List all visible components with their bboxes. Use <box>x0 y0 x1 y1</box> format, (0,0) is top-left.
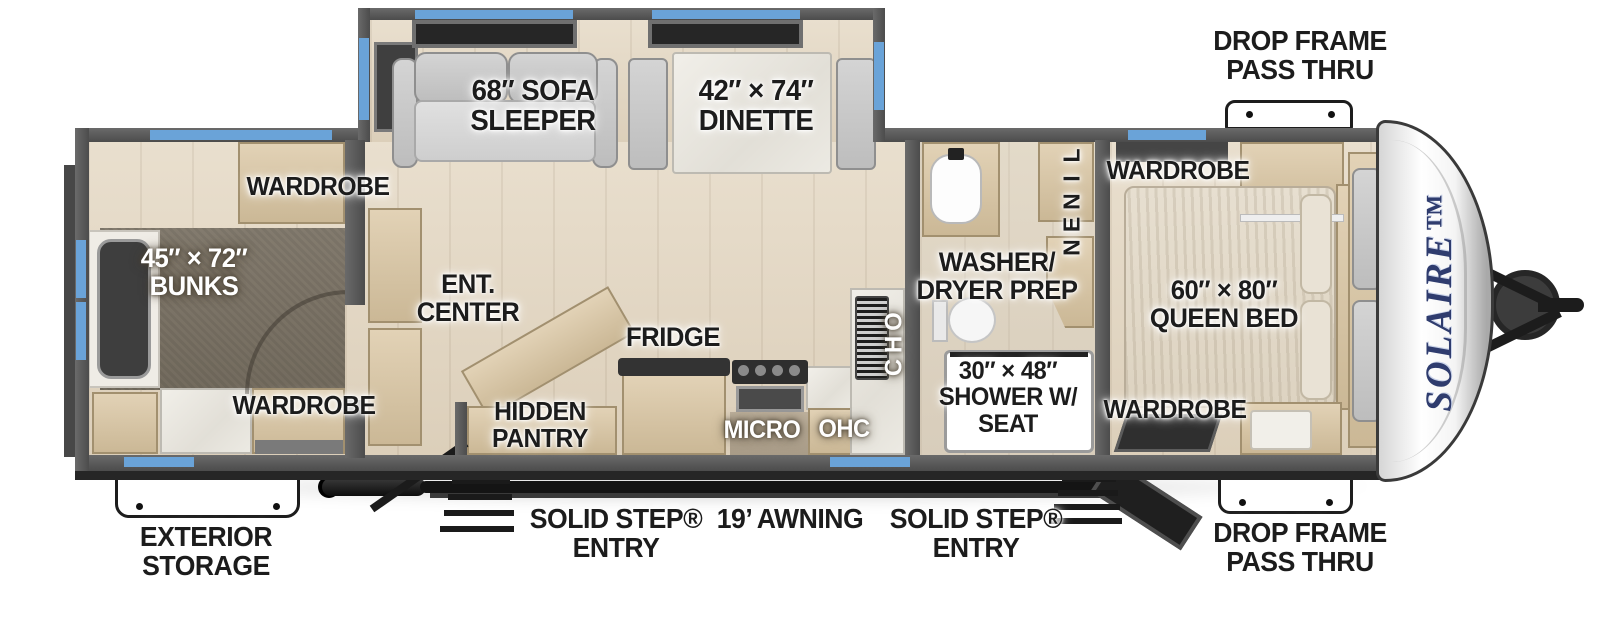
window-accent-rear-left-1 <box>76 240 86 298</box>
label-solid-step-left: SOLID STEP® ENTRY <box>530 504 703 563</box>
window-accent-bedroom-top <box>1128 130 1206 140</box>
awning-rail <box>420 481 1132 493</box>
brand-logo: SOLAIRE™ <box>1418 152 1458 452</box>
label-wardrobe-bunk-top: WARDROBE <box>246 173 389 200</box>
ent-center-cabinet-upper <box>368 208 422 323</box>
label-dropframe-top: DROP FRAME PASS THRU <box>1213 26 1387 85</box>
label-shower: 30″ × 48″ SHOWER W/ SEAT <box>939 358 1077 437</box>
exterior-storage-plate <box>115 474 300 518</box>
dinette-bench-left <box>628 58 668 170</box>
floorplan: SOLAIRE™ DROP FRAME PASS THRU 68″ SOFA S… <box>0 0 1600 624</box>
wall-bottom-shadow-edge <box>75 471 1385 480</box>
label-linen: LINEN <box>1058 144 1086 259</box>
label-queen-bed: 60″ × 80″ QUEEN BED <box>1150 276 1298 333</box>
entry-steps-left-rung4 <box>440 526 514 532</box>
dropframe-passthru-plate-top <box>1225 100 1353 130</box>
label-wardrobe-bed-top: WARDROBE <box>1106 157 1249 184</box>
hitch-coupler <box>1538 298 1584 312</box>
pantry-wall-stub <box>455 402 467 455</box>
storage-plate-screw-right <box>273 503 280 510</box>
fridge-top <box>618 358 730 376</box>
stove-burner-3 <box>772 365 783 376</box>
label-ohc-vertical: OHC <box>880 310 908 379</box>
entry-steps-right-rung3 <box>1054 504 1120 510</box>
rear-bumper <box>64 165 75 457</box>
stove-burner-4 <box>789 365 800 376</box>
entry-steps-left-rung2 <box>448 494 512 500</box>
label-dinette: 42″ × 74″ DINETTE <box>699 76 814 137</box>
fridge-body <box>622 374 726 455</box>
dropframe-bottom-screw-left <box>1239 499 1246 506</box>
wall-bunkroom-partition-upper <box>345 140 365 305</box>
bunk-cabinet-bottom-left <box>92 392 158 454</box>
label-wardrobe-bunk-bottom: WARDROBE <box>232 392 375 419</box>
label-hidden-pantry: HIDDEN PANTRY <box>492 398 588 453</box>
label-ent-center: ENT. CENTER <box>417 270 520 327</box>
awning-rail-lower <box>430 493 1130 498</box>
window-accent-slideout-1 <box>415 10 573 19</box>
label-bunks: 45″ × 72″ BUNKS <box>141 244 248 301</box>
storage-plate-screw-left <box>136 503 143 510</box>
label-dropframe-bottom: DROP FRAME PASS THRU <box>1213 518 1387 577</box>
window-accent-kitchen-bottom <box>830 457 910 467</box>
toilet-tank <box>932 300 948 342</box>
slideout-window-1 <box>412 20 577 48</box>
ent-center-cabinet-lower <box>368 328 422 446</box>
label-awning: 19’ AWNING <box>717 504 864 533</box>
window-accent-slideout-right <box>874 42 884 110</box>
oven-window <box>736 386 804 412</box>
kitchen-counter-mid <box>806 366 854 410</box>
stove-burner-2 <box>755 365 766 376</box>
window-accent-rear-top <box>150 130 332 140</box>
window-accent-slideout-left <box>359 38 369 120</box>
bed-bench-cushion <box>1250 410 1312 450</box>
label-micro: MICRO <box>724 417 801 443</box>
bath-sink <box>930 154 982 224</box>
bed-pillow-1 <box>1300 194 1332 294</box>
window-accent-slideout-2 <box>652 10 800 19</box>
bunk-bottom-shelf <box>255 440 343 454</box>
wall-bottom <box>75 455 1385 471</box>
label-exterior-storage: EXTERIOR STORAGE <box>140 522 272 581</box>
bed-pillow-2 <box>1300 300 1332 400</box>
dropframe-top-screw-right <box>1328 111 1335 118</box>
stove-burner-1 <box>738 365 749 376</box>
dinette-bench-right <box>836 58 876 170</box>
slideout-window-2 <box>648 20 803 48</box>
dropframe-top-screw-left <box>1246 111 1253 118</box>
label-solid-step-right: SOLID STEP® ENTRY <box>890 504 1063 563</box>
window-accent-bunk-bottom <box>124 457 194 467</box>
label-wardrobe-bed-bottom: WARDROBE <box>1103 396 1246 423</box>
label-fridge: FRIDGE <box>626 323 720 351</box>
window-accent-rear-left-2 <box>76 302 86 360</box>
entry-steps-left-rung3 <box>444 510 514 516</box>
dropframe-bottom-screw-right <box>1326 499 1333 506</box>
entry-steps-right-rung2 <box>1058 490 1118 496</box>
label-washer-dryer: WASHER/ DRYER PREP <box>916 248 1077 305</box>
dropframe-passthru-plate-bottom <box>1218 474 1353 514</box>
label-sofa-sleeper: 68″ SOFA SLEEPER <box>470 76 595 137</box>
label-ohc: OHC <box>818 416 869 442</box>
wall-rear-left <box>75 128 89 471</box>
bath-faucet <box>948 148 964 160</box>
